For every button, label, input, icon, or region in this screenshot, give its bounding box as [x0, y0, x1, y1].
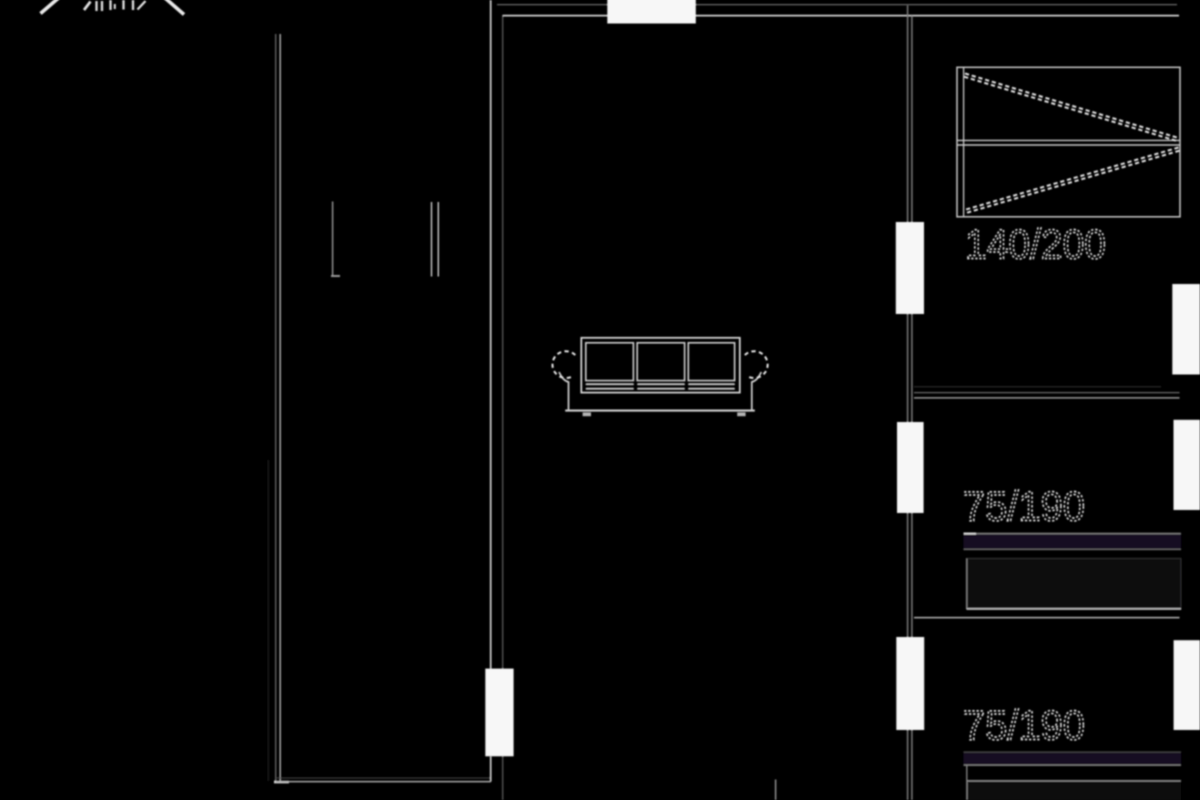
svg-text:140/200: 140/200	[965, 221, 1106, 268]
svg-text:75/190: 75/190	[963, 702, 1085, 749]
svg-text:75/190: 75/190	[963, 483, 1085, 530]
